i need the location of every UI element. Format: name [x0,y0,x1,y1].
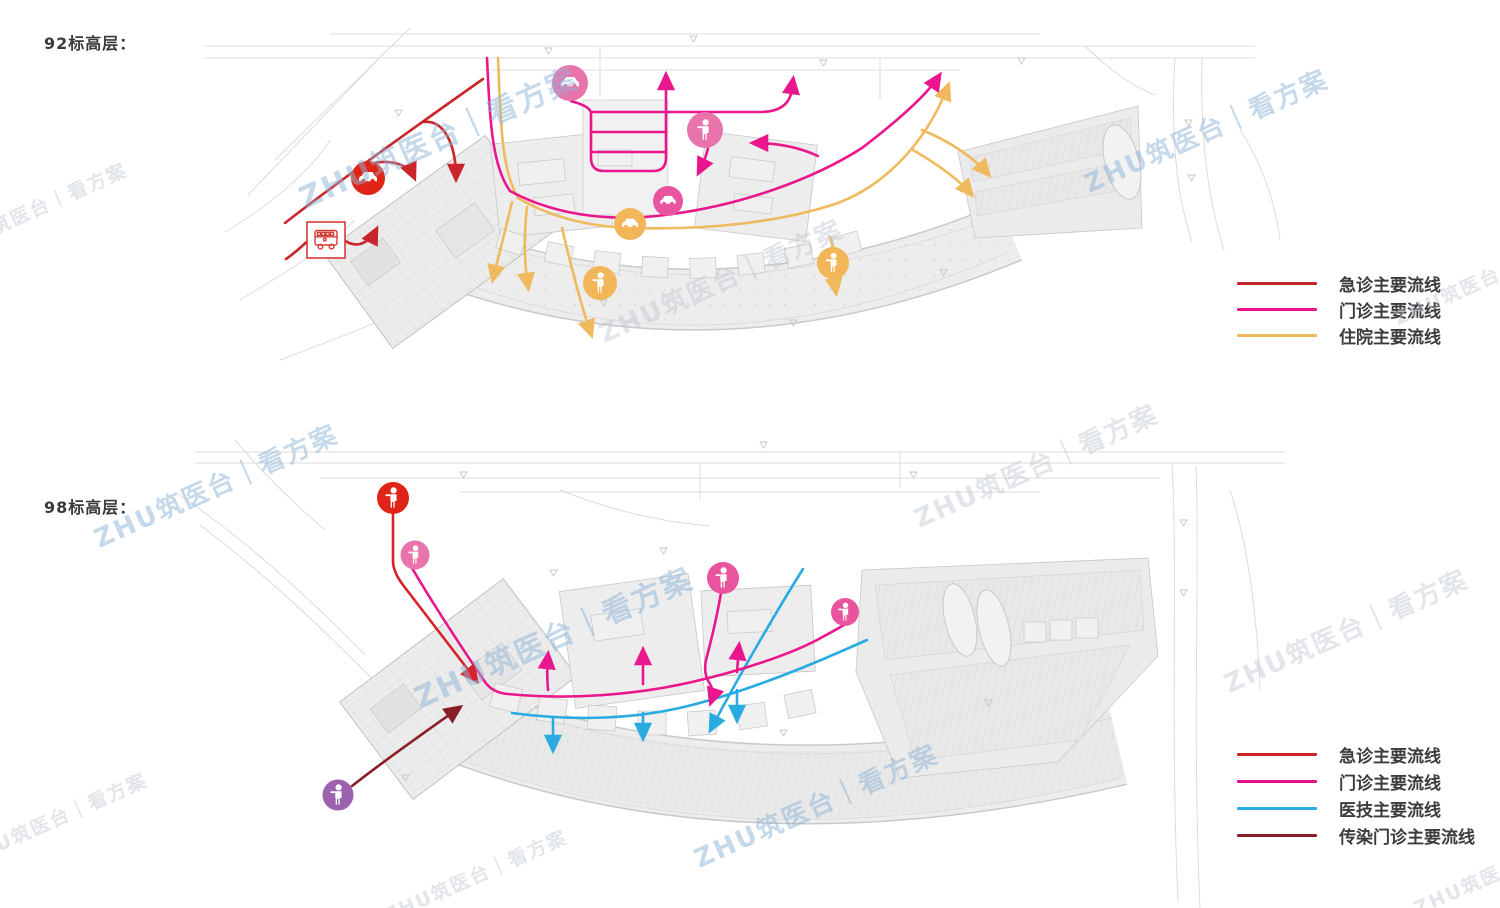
legend-item-emergency: 急诊主要流线 [1237,275,1441,291]
bus-icon-red-outline [307,222,345,258]
car-icon-red [351,161,385,195]
legend-swatch-outpatient [1237,308,1317,311]
pedestrian-icon-purple [323,780,354,811]
pedestrian-icon-pink [687,112,723,148]
base-buildings-92 [323,36,1195,348]
legend-label-outpatient: 门诊主要流线 [1339,769,1441,794]
legend-item-inpatient: 住院主要流线 [1237,327,1441,343]
floor-label-92: 92标高层： [44,30,136,54]
legend-label-inpatient: 住院主要流线 [1339,323,1441,348]
legend-label-outpatient: 门诊主要流线 [1339,297,1441,322]
legend-swatch-outpatient [1237,780,1317,783]
legend-swatch-infectious [1237,834,1317,837]
legend-label-emergency: 急诊主要流线 [1339,271,1441,296]
pedestrian-icon-orange-left [583,266,617,300]
legend-item-emergency: 急诊主要流线 [1237,746,1475,762]
legend-label-medtech: 医技主要流线 [1339,796,1441,821]
pedestrian-icon-pink-center [707,562,739,594]
car-icon-pink [552,65,588,101]
legend-item-medtech: 医技主要流线 [1237,800,1475,816]
car-icon-orange [614,208,646,240]
site-plan-98 [140,430,1360,908]
legend-label-infectious: 传染门诊主要流线 [1339,823,1475,848]
watermark: ZHU筑医台｜看方案 [0,156,131,261]
pedestrian-icon-orange-right [817,247,849,279]
legend-swatch-emergency [1237,753,1317,756]
car-icon-magenta [653,186,683,216]
watermark: ZHU筑医台｜看方案 [0,766,151,871]
diagram-canvas: 92标高层： 98标高层： [0,0,1500,908]
legend-item-outpatient: 门诊主要流线 [1237,773,1475,789]
pedestrian-icon-red [377,482,409,514]
legend-98: 急诊主要流线 门诊主要流线 医技主要流线 传染门诊主要流线 [1237,746,1475,843]
site-plan-92 [180,0,1300,430]
legend-label-emergency: 急诊主要流线 [1339,742,1441,767]
legend-swatch-inpatient [1237,334,1317,337]
legend-item-outpatient: 门诊主要流线 [1237,301,1441,317]
legend-92: 急诊主要流线 门诊主要流线 住院主要流线 [1237,275,1441,343]
floor-label-98: 98标高层： [44,494,136,518]
pedestrian-icon-pink-upper [401,541,430,570]
base-buildings-98 [340,442,1187,819]
pedestrian-icon-pink-right [831,598,859,626]
legend-swatch-emergency [1237,282,1317,285]
legend-swatch-medtech [1237,807,1317,810]
legend-item-infectious: 传染门诊主要流线 [1237,827,1475,843]
